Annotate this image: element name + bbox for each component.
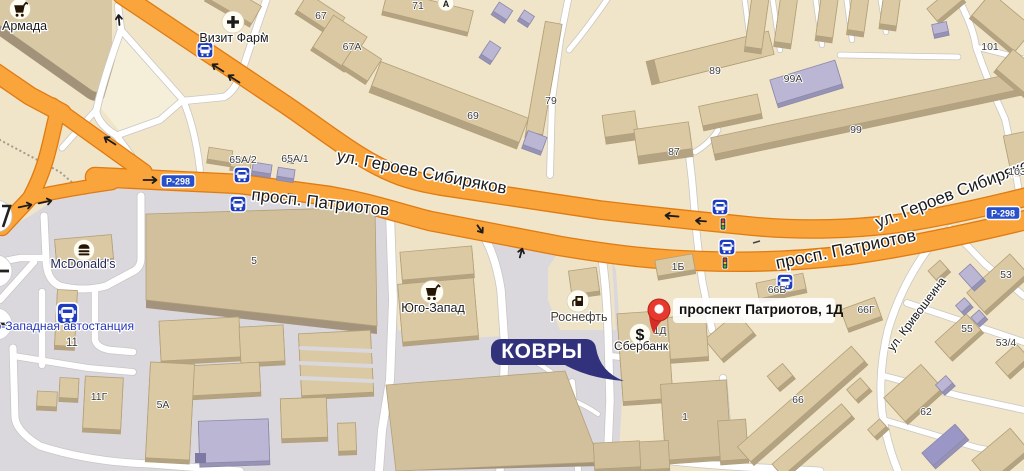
svg-text:Сбербанк: Сбербанк — [614, 339, 669, 353]
svg-text:McDonald's: McDonald's — [51, 257, 116, 271]
svg-text:66Г: 66Г — [857, 304, 875, 316]
svg-text:Юго-Западная автостанция: Юго-Западная автостанция — [0, 319, 134, 333]
svg-text:66Б: 66Б — [768, 284, 787, 296]
svg-text:67А: 67А — [343, 41, 362, 53]
svg-text:53/4: 53/4 — [996, 337, 1017, 349]
svg-text:65А/1: 65А/1 — [281, 153, 309, 165]
svg-text:Р-298: Р-298 — [991, 208, 1015, 218]
svg-text:Визит Фарм: Визит Фарм — [199, 31, 268, 45]
svg-text:Армада: Армада — [2, 19, 47, 33]
svg-text:66: 66 — [792, 394, 804, 406]
svg-text:69: 69 — [467, 110, 479, 122]
svg-text:99: 99 — [850, 124, 862, 136]
svg-text:1: 1 — [682, 411, 688, 423]
svg-text:55: 55 — [961, 323, 973, 335]
svg-text:65А/2: 65А/2 — [229, 154, 257, 166]
svg-text:87: 87 — [668, 146, 680, 158]
svg-text:53: 53 — [1000, 269, 1012, 281]
svg-text:11Г: 11Г — [91, 391, 108, 403]
svg-text:62: 62 — [920, 406, 932, 418]
svg-text:101: 101 — [981, 41, 999, 53]
svg-text:1Б: 1Б — [672, 261, 685, 273]
svg-text:Роснефть: Роснефть — [550, 310, 607, 324]
svg-text:67: 67 — [315, 10, 327, 22]
svg-text:103: 103 — [1008, 166, 1024, 178]
svg-text:99А: 99А — [784, 73, 803, 85]
svg-text:КОВРЫ: КОВРЫ — [501, 340, 582, 363]
svg-text:5: 5 — [251, 255, 257, 267]
svg-text:Юго-Запад: Юго-Запад — [401, 301, 465, 315]
svg-text:11: 11 — [66, 337, 78, 349]
svg-text:79: 79 — [545, 95, 557, 107]
svg-text:71: 71 — [412, 0, 424, 12]
svg-text:89: 89 — [709, 65, 721, 77]
svg-text:Р-298: Р-298 — [166, 176, 190, 186]
svg-text:5А: 5А — [157, 399, 170, 411]
svg-text:А: А — [443, 0, 450, 9]
svg-text:проспект Патриотов, 1Д: проспект Патриотов, 1Д — [679, 302, 843, 317]
